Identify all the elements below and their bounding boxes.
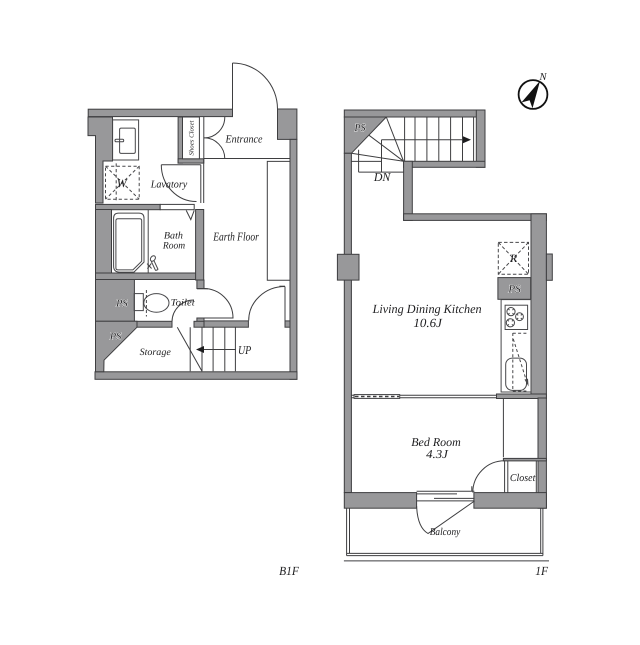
svg-text:Balcony: Balcony bbox=[430, 527, 461, 538]
svg-text:Storage: Storage bbox=[140, 347, 172, 358]
svg-text:PS: PS bbox=[507, 284, 521, 296]
svg-text:PS: PS bbox=[115, 299, 128, 310]
svg-text:DN: DN bbox=[373, 170, 391, 184]
svg-text:Entrance: Entrance bbox=[225, 134, 263, 146]
svg-text:PS: PS bbox=[354, 123, 367, 134]
svg-text:W: W bbox=[117, 176, 129, 190]
svg-text:UP: UP bbox=[238, 343, 252, 357]
svg-text:Closet: Closet bbox=[510, 473, 537, 484]
svg-text:Living Dining Kitchen: Living Dining Kitchen bbox=[372, 302, 482, 316]
svg-text:1F: 1F bbox=[535, 564, 548, 578]
svg-text:Lavatory: Lavatory bbox=[150, 179, 188, 190]
svg-text:N: N bbox=[538, 72, 547, 83]
svg-text:Room: Room bbox=[162, 240, 185, 251]
svg-text:R: R bbox=[509, 253, 517, 265]
svg-text:B1F: B1F bbox=[279, 564, 299, 578]
svg-text:Earth Floor: Earth Floor bbox=[212, 230, 259, 244]
svg-text:4.3J: 4.3J bbox=[426, 447, 449, 461]
svg-text:10.6J: 10.6J bbox=[413, 316, 443, 330]
svg-text:PS: PS bbox=[109, 331, 122, 342]
svg-text:Toilet: Toilet bbox=[171, 297, 195, 308]
svg-text:Shoes Closet: Shoes Closet bbox=[188, 120, 195, 155]
